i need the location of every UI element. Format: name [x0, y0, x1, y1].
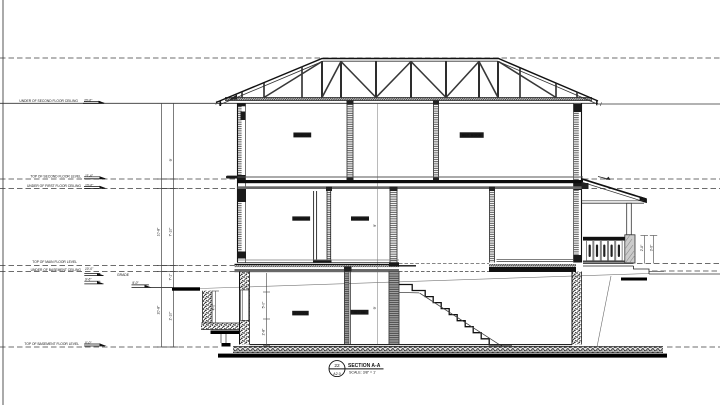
svg-text:A2.0: A2.0 [333, 372, 340, 376]
svg-text:BEDROOM: BEDROOM [293, 312, 309, 316]
svg-text:SECTION A-A: SECTION A-A [348, 363, 381, 369]
svg-text:TOP OF MAIN FLOOR LEVEL: TOP OF MAIN FLOOR LEVEL [32, 260, 77, 264]
svg-text:7'-10": 7'-10" [169, 227, 173, 236]
svg-text:UNDER OF BASEMENT CEILING: UNDER OF BASEMENT CEILING [31, 268, 82, 272]
svg-text:20'-6": 20'-6" [83, 99, 93, 103]
svg-text:2'-8": 2'-8" [640, 244, 644, 251]
svg-text:UNDER OF FIRST FLOOR CEILING: UNDER OF FIRST FLOOR CEILING [27, 184, 81, 188]
svg-text:GRADE: GRADE [117, 273, 130, 277]
svg-text:22: 22 [334, 363, 340, 369]
svg-text:7'-1": 7'-1" [169, 273, 173, 281]
svg-text:20'-8": 20'-8" [157, 305, 161, 314]
svg-text:TOP OF SECOND FLOOR LEVEL: TOP OF SECOND FLOOR LEVEL [30, 175, 81, 179]
svg-text:10'-8": 10'-8" [157, 227, 161, 236]
svg-text:2'-8": 2'-8" [262, 328, 266, 336]
svg-text:TOP OF BASEMENT FLOOR LEVEL: TOP OF BASEMENT FLOOR LEVEL [24, 342, 79, 346]
svg-text:11'-6": 11'-6" [85, 174, 94, 178]
svg-text:2'-10": 2'-10" [169, 311, 173, 320]
svg-text:10'-0": 10'-0" [85, 267, 94, 271]
svg-text:REC RM: REC RM [354, 311, 366, 315]
svg-text:BATHROOM: BATHROOM [351, 217, 369, 221]
svg-text:REC. ROOM: REC. ROOM [462, 134, 482, 138]
svg-text:9'-6": 9'-6" [85, 277, 92, 281]
svg-text:4'-0": 4'-0" [212, 303, 216, 311]
svg-text:UNDER OF SECOND FLOOR CEILING: UNDER OF SECOND FLOOR CEILING [19, 99, 78, 103]
svg-text:9': 9' [373, 224, 377, 227]
svg-text:BEDROOM: BEDROOM [294, 133, 311, 137]
svg-text:3'-0": 3'-0" [649, 244, 653, 251]
svg-text:SCALE: 3/8" = 1': SCALE: 3/8" = 1' [349, 370, 376, 374]
svg-text:0'-0": 0'-0" [85, 341, 92, 345]
svg-text:9': 9' [169, 158, 173, 161]
svg-text:9'-0": 9'-0" [132, 281, 139, 285]
svg-text:BEDROOM: BEDROOM [293, 217, 309, 221]
svg-text:5'-0": 5'-0" [262, 301, 266, 309]
svg-text:9': 9' [373, 306, 377, 309]
svg-text:10'-6": 10'-6" [85, 183, 94, 187]
